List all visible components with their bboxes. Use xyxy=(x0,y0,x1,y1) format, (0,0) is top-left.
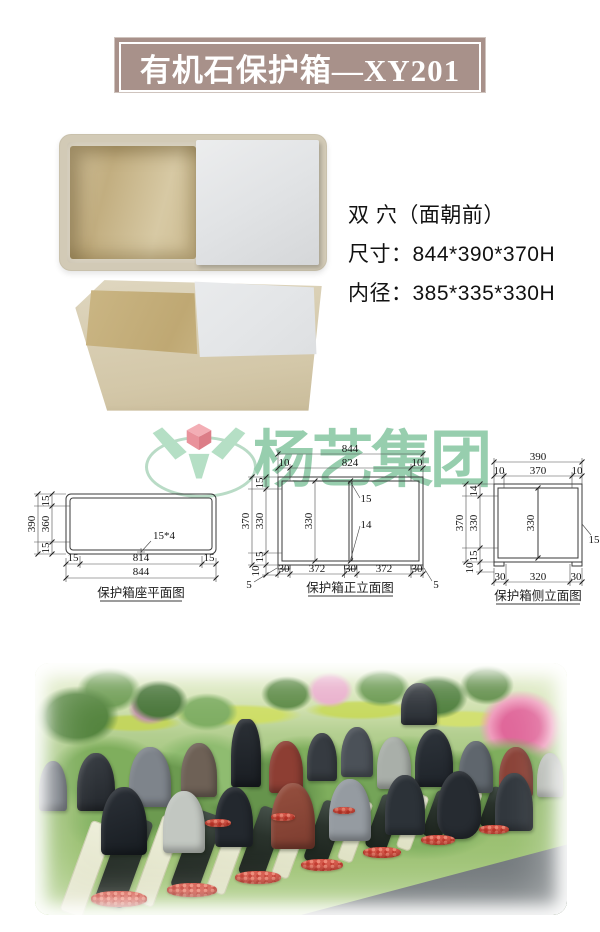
dim-label: 390 xyxy=(26,515,38,532)
side-outline xyxy=(494,484,582,566)
box-lid xyxy=(196,140,319,265)
plan-ticks xyxy=(36,492,219,581)
dim-label: 15 xyxy=(68,552,80,564)
dim-label: 15*4 xyxy=(153,530,176,542)
dim-label: 370 xyxy=(240,512,252,529)
spec-line-size: 尺寸：844*390*370H xyxy=(348,235,555,274)
plan-dimension-lines xyxy=(34,494,216,582)
spec-line-cavity: 双 穴（面朝前） xyxy=(348,196,555,235)
dim-label: 30 xyxy=(279,563,291,575)
flower-bed xyxy=(479,825,509,834)
dim-label: 30 xyxy=(345,563,357,575)
dim-label: 360 xyxy=(40,515,52,532)
dim-label: 814 xyxy=(133,552,150,564)
side-ticks xyxy=(464,460,585,585)
plan-outline xyxy=(66,494,216,554)
product-photo-perspective xyxy=(70,270,335,415)
flower-bed xyxy=(301,859,343,871)
front-elevation-drawing: 844 10 824 10 370 15 330 15 10 5 330 15 … xyxy=(240,440,460,603)
side-elevation-drawing: 390 10 370 10 370 14 330 15 10 330 15 30… xyxy=(452,446,600,609)
headstone xyxy=(307,733,337,781)
dim-label: 30 xyxy=(571,571,583,583)
page: 有机石保护箱—XY201 双 穴（面朝前） 尺寸：844*390*370H 内径… xyxy=(0,0,600,932)
product-photo-top-view xyxy=(56,133,330,272)
drawing-caption: 保护箱正立面图 xyxy=(306,580,394,595)
dim-label: 10 xyxy=(494,465,506,477)
dim-label: 10 xyxy=(572,465,584,477)
front-ticks xyxy=(250,452,426,578)
spec-line-inner-size: 内径：385*335*330H xyxy=(348,274,555,313)
dim-label: 15 xyxy=(40,495,52,507)
spec-block: 双 穴（面朝前） 尺寸：844*390*370H 内径：385*335*330H xyxy=(348,196,555,313)
flower-bed xyxy=(205,819,231,827)
headstone xyxy=(341,727,373,777)
headstone xyxy=(401,683,437,725)
flower-bed xyxy=(421,835,455,845)
dim-label: 330 xyxy=(468,514,480,531)
dim-label: 370 xyxy=(530,465,547,477)
dim-label: 320 xyxy=(530,571,547,583)
dim-label: 15 xyxy=(468,550,480,562)
headstone xyxy=(39,761,67,811)
flower-bed xyxy=(91,891,147,907)
dim-label: 30 xyxy=(495,571,507,583)
dim-label: 330 xyxy=(525,514,537,531)
cemetery-photo xyxy=(35,663,567,915)
dim-label: 372 xyxy=(376,563,393,575)
drawing-caption: 保护箱侧立面图 xyxy=(494,588,582,603)
flower-bed xyxy=(333,807,355,814)
dim-label: 330 xyxy=(303,512,315,529)
dim-label: 15 xyxy=(589,534,600,546)
dim-label: 330 xyxy=(254,512,266,529)
dim-label: 10 xyxy=(250,565,262,577)
dim-label: 10 xyxy=(412,457,424,469)
dim-label: 15 xyxy=(40,542,52,554)
flower-bed xyxy=(271,813,295,821)
dim-label: 10 xyxy=(464,562,476,574)
flower-bed xyxy=(235,871,281,884)
dim-label: 15 xyxy=(254,477,266,489)
dim-label: 15 xyxy=(204,552,216,564)
title-banner-frame: 有机石保护箱—XY201 xyxy=(119,42,481,92)
dim-label: 5 xyxy=(433,579,439,591)
dim-label: 844 xyxy=(133,566,150,578)
dim-label: 5 xyxy=(246,579,252,591)
dim-label: 390 xyxy=(530,451,547,463)
dim-label: 10 xyxy=(279,457,291,469)
dim-label: 370 xyxy=(454,514,466,531)
dim-label: 15 xyxy=(254,551,266,563)
dim-label: 844 xyxy=(342,443,359,455)
dim-label: 15 xyxy=(361,493,373,505)
dim-label: 14 xyxy=(361,519,373,531)
dim-label: 30 xyxy=(412,563,424,575)
dim-label: 14 xyxy=(468,485,480,497)
page-title: 有机石保护箱—XY201 xyxy=(140,45,460,90)
headstone xyxy=(231,719,261,787)
drawing-caption: 保护箱座平面图 xyxy=(97,585,185,600)
title-banner: 有机石保护箱—XY201 xyxy=(115,38,485,92)
dim-label: 372 xyxy=(309,563,326,575)
front-outline xyxy=(278,477,423,569)
headstone xyxy=(537,753,563,797)
plan-drawing: 390 15 360 15 15 814 15 844 15*4 保护箱座平面图 xyxy=(28,440,243,608)
dim-label: 824 xyxy=(342,457,359,469)
flower-bed xyxy=(363,847,401,858)
box-cavity xyxy=(70,146,196,260)
flower-bed xyxy=(167,883,217,897)
